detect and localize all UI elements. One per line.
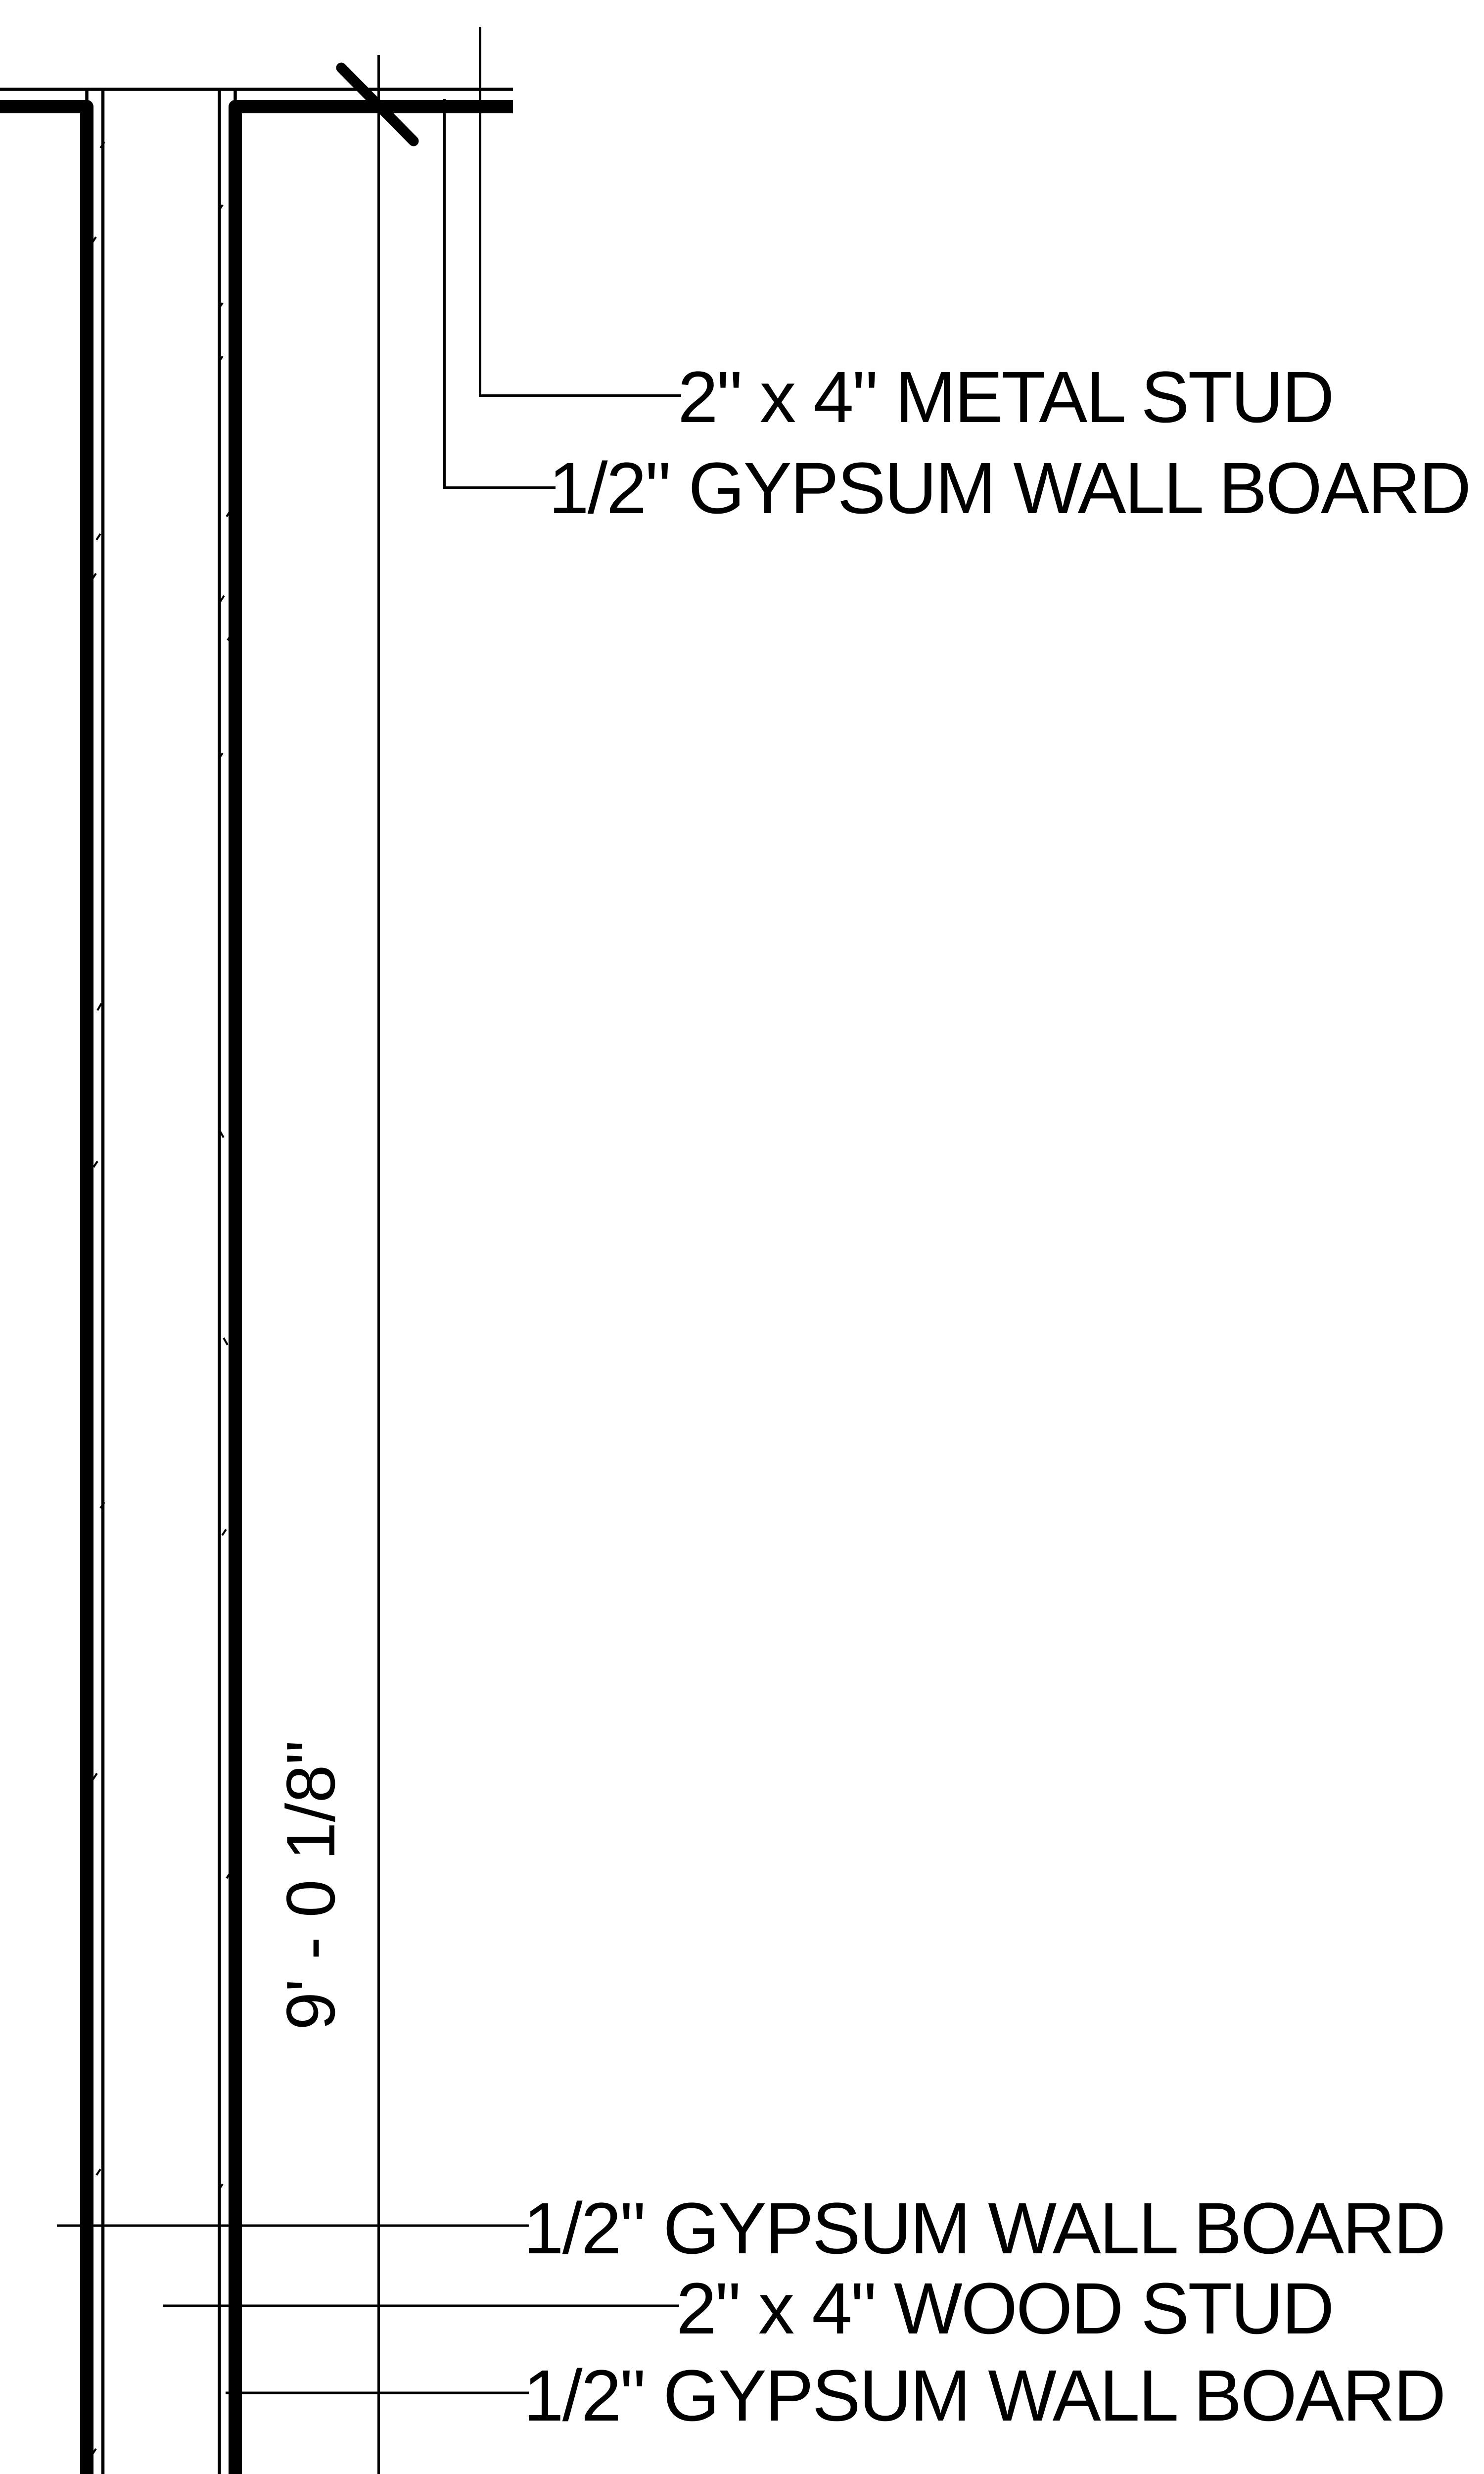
svg-text:9' - 0 1/8": 9' - 0 1/8" [273,1740,349,2030]
svg-text:1/2" GYPSUM WALL BOARD: 1/2" GYPSUM WALL BOARD [523,2188,1444,2269]
svg-text:1/2" GYPSUM WALL BOARD: 1/2" GYPSUM WALL BOARD [549,448,1470,529]
svg-text:2" x 4" WOOD STUD: 2" x 4" WOOD STUD [676,2268,1333,2349]
svg-text:1/2" GYPSUM WALL BOARD: 1/2" GYPSUM WALL BOARD [523,2355,1444,2436]
svg-text:2" x 4" METAL STUD: 2" x 4" METAL STUD [678,357,1333,438]
